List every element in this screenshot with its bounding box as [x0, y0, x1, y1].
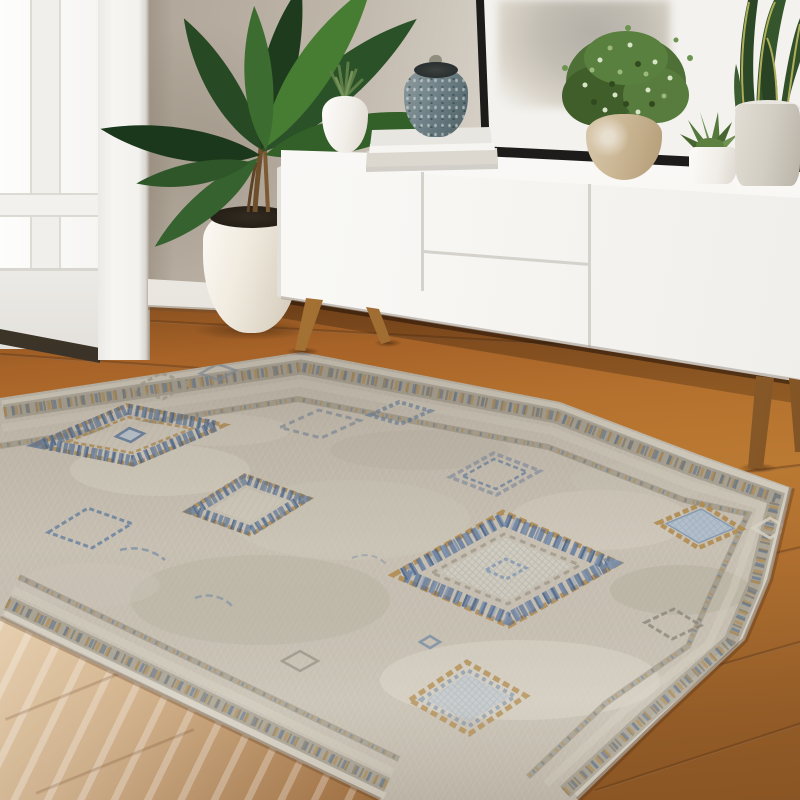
snake-plant-pot — [735, 104, 800, 186]
snake-plant — [0, 0, 800, 800]
photo-living-room-rug-scene — [0, 0, 800, 800]
